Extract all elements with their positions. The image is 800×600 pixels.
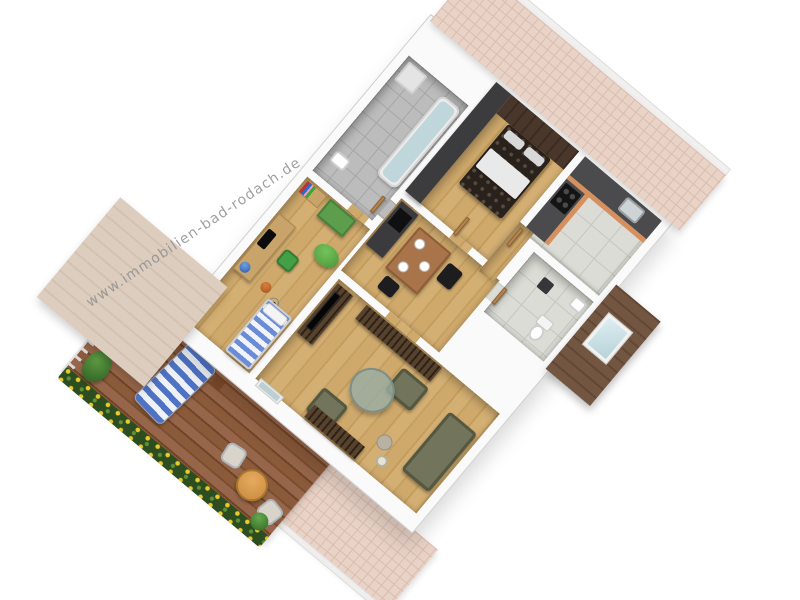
floorplan-image: www.immobilien-bad-rodach.de <box>0 0 800 600</box>
